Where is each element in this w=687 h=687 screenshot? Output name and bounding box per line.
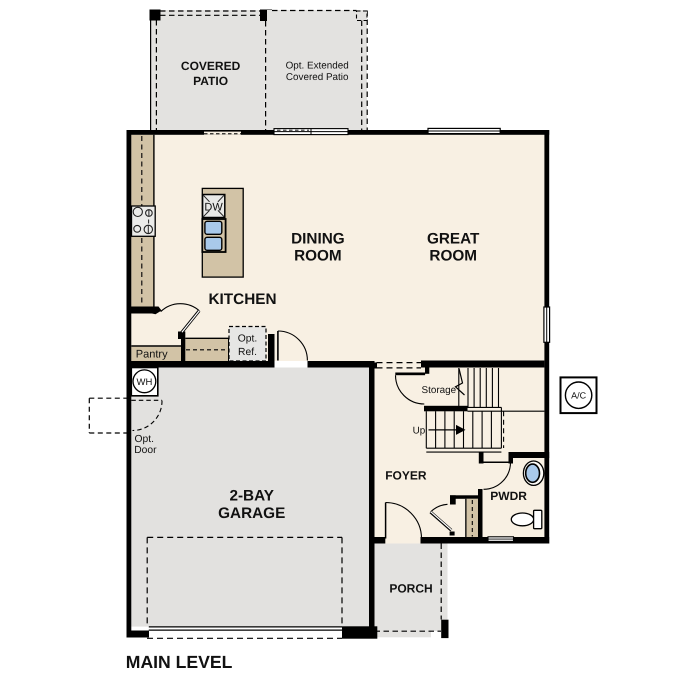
svg-text:GARAGE: GARAGE xyxy=(218,505,285,522)
svg-text:PWDR: PWDR xyxy=(490,489,527,503)
svg-text:ROOM: ROOM xyxy=(294,247,342,264)
svg-text:2-BAY: 2-BAY xyxy=(229,487,274,504)
svg-text:Opt.: Opt. xyxy=(238,334,257,345)
svg-text:Storage: Storage xyxy=(422,385,457,396)
svg-text:Covered Patio: Covered Patio xyxy=(286,72,349,83)
svg-text:Opt.: Opt. xyxy=(135,434,154,445)
svg-text:COVERED: COVERED xyxy=(181,59,241,73)
svg-text:KITCHEN: KITCHEN xyxy=(209,291,277,308)
svg-text:Ref.: Ref. xyxy=(238,347,257,358)
svg-text:Pantry: Pantry xyxy=(136,349,168,361)
svg-text:Up: Up xyxy=(413,426,426,437)
svg-text:Door: Door xyxy=(134,445,157,456)
svg-text:ROOM: ROOM xyxy=(429,247,477,264)
svg-text:MAIN LEVEL: MAIN LEVEL xyxy=(126,652,233,672)
svg-text:A/C: A/C xyxy=(571,390,587,400)
svg-text:Opt. Extended: Opt. Extended xyxy=(286,60,349,71)
svg-text:PORCH: PORCH xyxy=(389,582,432,596)
svg-text:WH: WH xyxy=(136,377,152,388)
svg-text:DW: DW xyxy=(204,201,223,213)
svg-text:GREAT: GREAT xyxy=(427,231,480,248)
svg-text:FOYER: FOYER xyxy=(385,469,427,483)
svg-text:PATIO: PATIO xyxy=(193,74,228,88)
svg-text:DINING: DINING xyxy=(291,231,345,248)
